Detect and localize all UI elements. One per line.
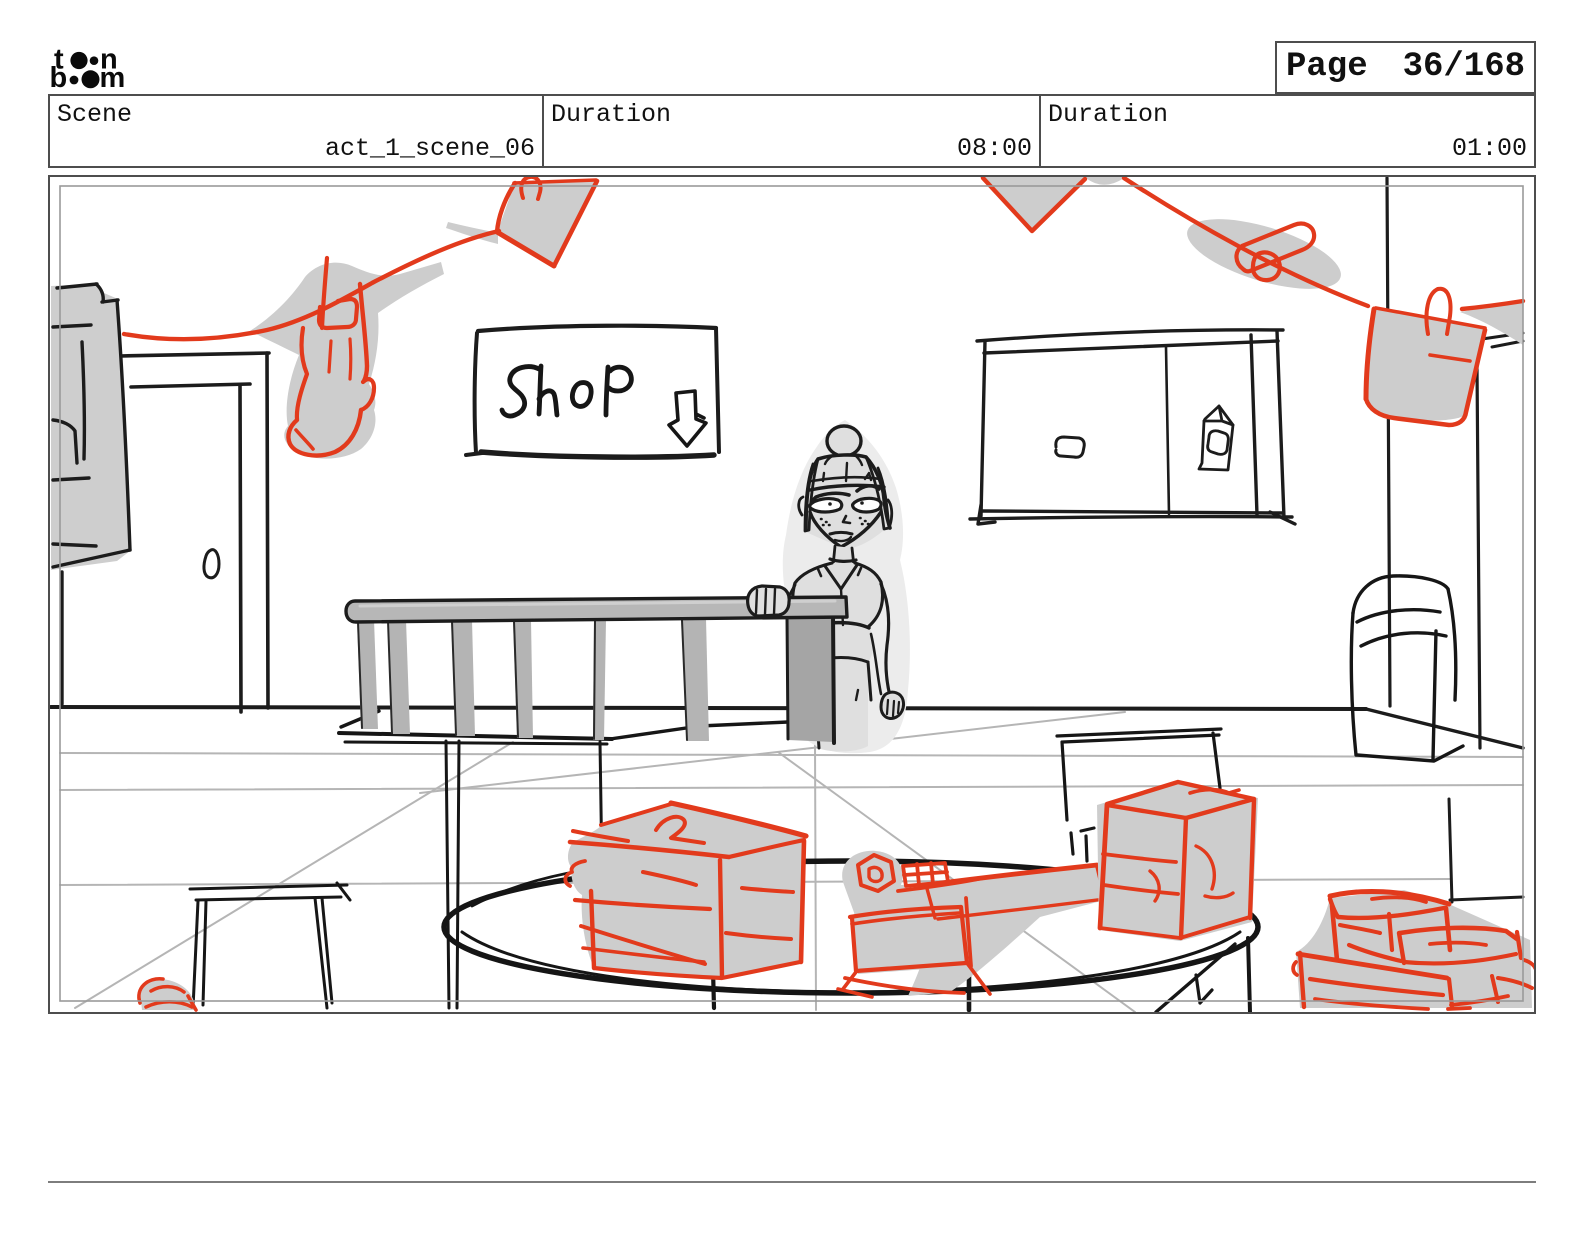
- svg-text:m: m: [100, 62, 126, 94]
- svg-text:b: b: [50, 62, 68, 94]
